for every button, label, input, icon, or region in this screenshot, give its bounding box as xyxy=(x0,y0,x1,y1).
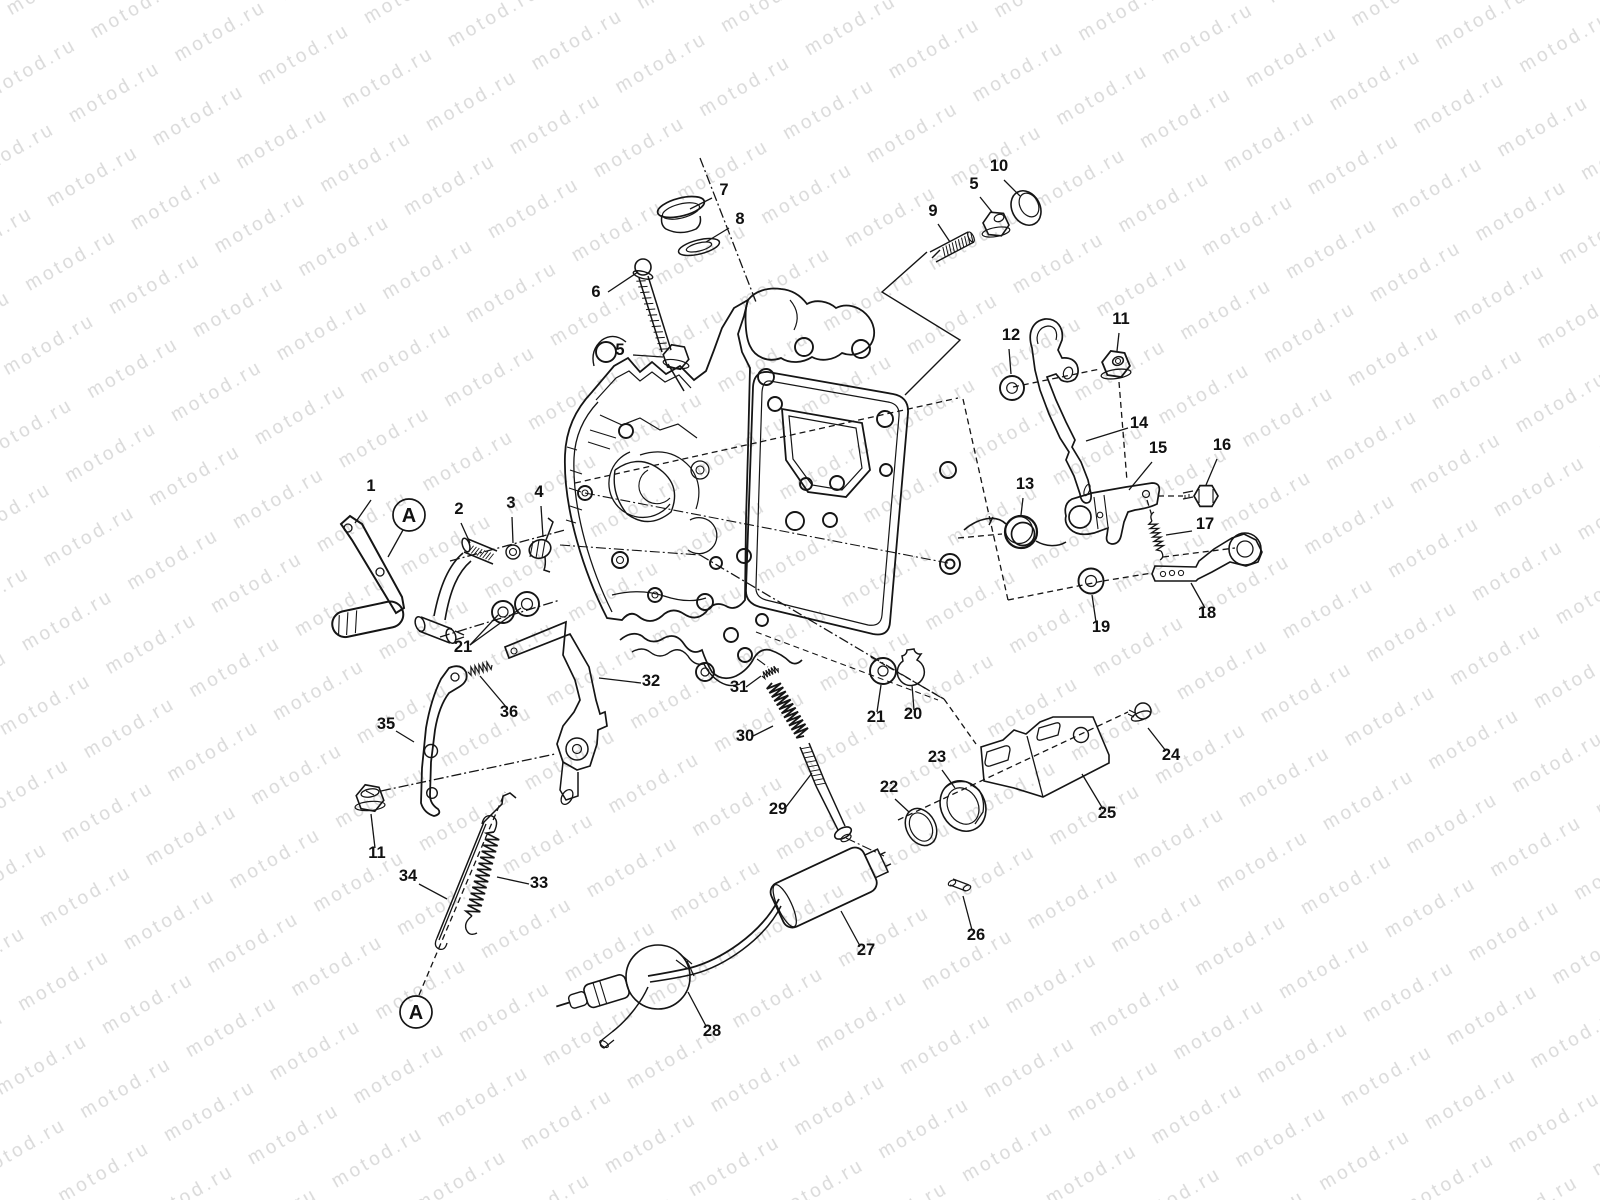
svg-text:14: 14 xyxy=(1130,414,1149,432)
svg-text:15: 15 xyxy=(1149,439,1167,457)
svg-text:35: 35 xyxy=(377,715,395,733)
svg-text:6: 6 xyxy=(591,283,600,301)
svg-text:1: 1 xyxy=(366,477,375,495)
svg-text:A: A xyxy=(402,505,416,527)
svg-text:11: 11 xyxy=(368,844,385,862)
svg-text:32: 32 xyxy=(642,672,660,690)
svg-text:27: 27 xyxy=(857,941,875,959)
svg-text:34: 34 xyxy=(399,867,418,885)
svg-text:4: 4 xyxy=(534,483,544,501)
svg-text:17: 17 xyxy=(1196,515,1214,533)
svg-text:16: 16 xyxy=(1213,436,1231,454)
svg-text:26: 26 xyxy=(967,926,985,944)
svg-text:23: 23 xyxy=(928,748,946,766)
svg-text:5: 5 xyxy=(615,341,624,359)
svg-text:8: 8 xyxy=(735,210,744,228)
svg-text:2: 2 xyxy=(454,500,463,518)
svg-text:21: 21 xyxy=(454,638,472,656)
svg-text:22: 22 xyxy=(880,778,898,796)
svg-text:20: 20 xyxy=(904,705,922,723)
svg-text:18: 18 xyxy=(1198,604,1216,622)
svg-text:9: 9 xyxy=(928,202,937,220)
svg-text:12: 12 xyxy=(1002,326,1020,344)
svg-text:25: 25 xyxy=(1098,804,1116,822)
svg-text:3: 3 xyxy=(506,494,515,512)
svg-text:10: 10 xyxy=(990,157,1008,175)
svg-text:11: 11 xyxy=(1112,310,1129,328)
svg-text:36: 36 xyxy=(500,703,518,721)
svg-text:29: 29 xyxy=(769,800,787,818)
svg-text:19: 19 xyxy=(1092,618,1110,636)
svg-text:A: A xyxy=(409,1002,423,1024)
svg-text:13: 13 xyxy=(1016,475,1034,493)
svg-text:5: 5 xyxy=(969,175,978,193)
svg-text:7: 7 xyxy=(719,181,728,199)
svg-text:21: 21 xyxy=(867,708,885,726)
svg-text:33: 33 xyxy=(530,874,548,892)
svg-text:31: 31 xyxy=(730,678,748,696)
svg-text:30: 30 xyxy=(736,727,754,745)
